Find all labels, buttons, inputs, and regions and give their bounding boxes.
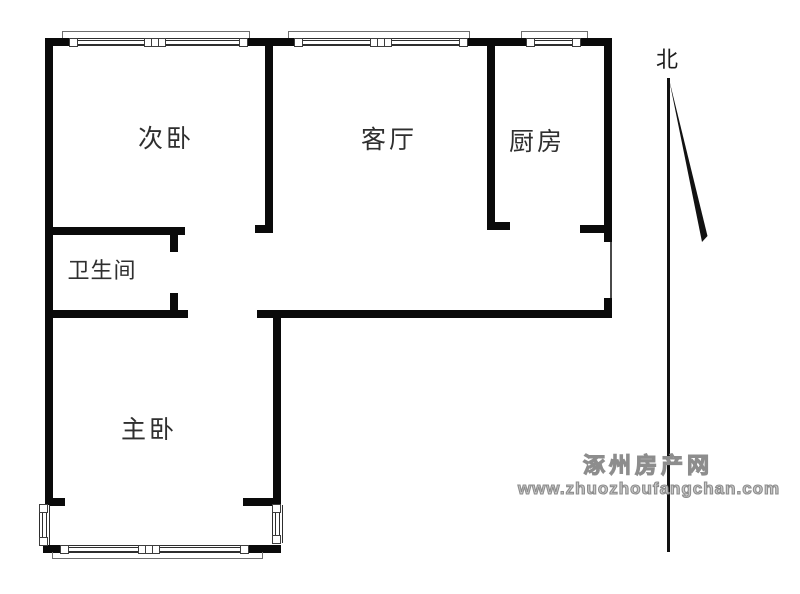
wall-south-hall bbox=[257, 310, 612, 318]
window-secondary-bedroom bbox=[70, 38, 247, 46]
floor-plan: 次卧 客厅 厨房 卫生间 主卧 北 涿州房产网 www.zhuozhoufang… bbox=[0, 0, 800, 594]
window-pane bbox=[39, 537, 48, 546]
wall-bathroom-door-top-stub bbox=[170, 233, 178, 252]
window-pane bbox=[272, 504, 281, 513]
window-living-room bbox=[295, 38, 467, 46]
wall-right-outer-kitchen bbox=[604, 38, 612, 242]
wall-kitchen-door-left-stub bbox=[487, 222, 510, 230]
window-master-bay-left bbox=[39, 505, 50, 545]
room-label-master-bedroom: 主卧 bbox=[121, 410, 177, 446]
wall-bathroom-bottom bbox=[48, 310, 188, 318]
wall-bathroom-top bbox=[48, 227, 185, 235]
watermark-url: www.zhuozhoufangchan.com bbox=[518, 479, 780, 499]
window-pane bbox=[459, 38, 468, 47]
window-kitchen bbox=[527, 38, 580, 46]
window-master-bay-right bbox=[272, 505, 283, 543]
room-label-bathroom: 卫生间 bbox=[67, 253, 136, 285]
window-pane bbox=[39, 504, 48, 513]
wall-master-bedroom-right bbox=[273, 318, 281, 506]
wall-top-mid-segment-2 bbox=[467, 38, 527, 46]
window-pane bbox=[572, 38, 581, 47]
wall-left-outer bbox=[45, 38, 53, 506]
window-pane bbox=[526, 38, 535, 47]
window-pane bbox=[69, 38, 78, 47]
window-sill bbox=[52, 552, 263, 559]
window-pane bbox=[294, 38, 303, 47]
wall-bathroom-door-bottom-stub bbox=[170, 293, 178, 310]
room-label-kitchen: 厨房 bbox=[509, 122, 565, 158]
entry-opening-line bbox=[610, 242, 612, 298]
wall-divider-bedroom-living bbox=[265, 38, 273, 233]
window-pane bbox=[239, 38, 248, 47]
room-label-secondary-bedroom: 次卧 bbox=[138, 119, 194, 155]
wall-divider-living-kitchen bbox=[487, 38, 495, 230]
window-mullion bbox=[144, 38, 166, 47]
window-mullion bbox=[370, 38, 392, 47]
window-pane bbox=[272, 535, 281, 544]
wall-divider-bedroom-living-foot bbox=[255, 225, 273, 233]
room-label-living-room: 客厅 bbox=[361, 120, 417, 156]
watermark-site-name: 涿州房产网 bbox=[583, 448, 713, 480]
